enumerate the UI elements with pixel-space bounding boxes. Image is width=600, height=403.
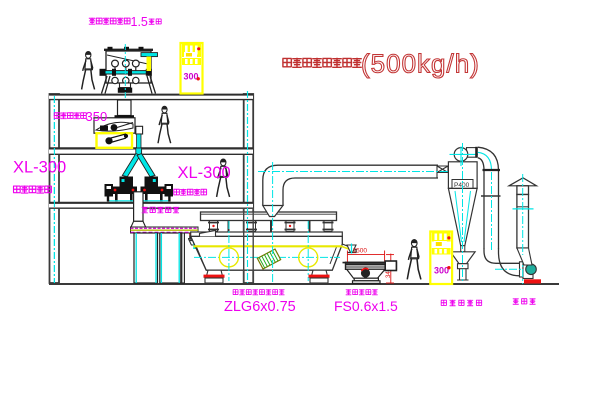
svg-text:FS0.6x1.5: FS0.6x1.5 — [334, 298, 398, 314]
svg-text:1.5: 1.5 — [131, 15, 148, 29]
svg-text:1500: 1500 — [353, 248, 368, 255]
svg-text:350: 350 — [86, 109, 108, 124]
svg-text:300: 300 — [434, 266, 449, 276]
svg-text:(500kg/h): (500kg/h) — [361, 49, 480, 79]
svg-text:P400: P400 — [454, 182, 470, 189]
svg-text:XL-300: XL-300 — [13, 159, 66, 177]
svg-text:300: 300 — [184, 72, 199, 82]
svg-text:ZLG6x0.75: ZLG6x0.75 — [224, 299, 296, 315]
svg-text:XL-300: XL-300 — [178, 164, 231, 182]
